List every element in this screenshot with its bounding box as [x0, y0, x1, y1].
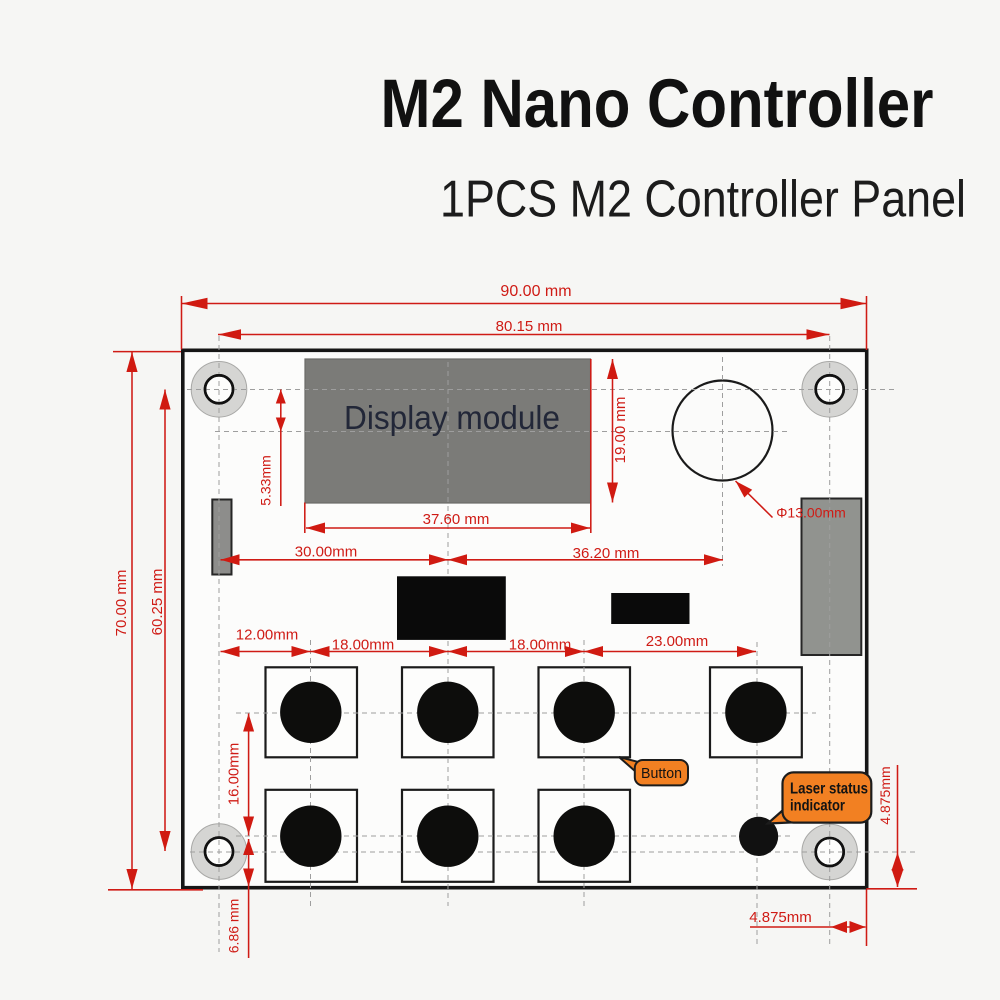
svg-text:36.20 mm: 36.20 mm [573, 545, 640, 562]
svg-text:12.00mm: 12.00mm [236, 627, 299, 644]
svg-text:Φ13.00mm: Φ13.00mm [776, 505, 846, 521]
svg-text:37.60 mm: 37.60 mm [423, 511, 490, 528]
svg-text:19.00 mm: 19.00 mm [612, 397, 629, 464]
svg-text:70.00 mm: 70.00 mm [113, 570, 130, 637]
svg-text:Button: Button [641, 766, 682, 782]
svg-text:Laser status: Laser status [790, 781, 868, 798]
svg-text:4.875mm: 4.875mm [877, 766, 893, 824]
svg-text:4.875mm: 4.875mm [749, 909, 812, 926]
svg-text:indicator: indicator [790, 798, 845, 815]
svg-text:90.00 mm: 90.00 mm [500, 283, 571, 300]
svg-text:M2 Nano Controller: M2 Nano Controller [381, 65, 934, 142]
svg-text:30.00mm: 30.00mm [295, 543, 358, 560]
svg-text:6.86 mm: 6.86 mm [226, 899, 242, 953]
svg-text:60.25 mm: 60.25 mm [149, 569, 166, 636]
svg-text:18.00mm: 18.00mm [332, 637, 395, 654]
svg-text:18.00mm: 18.00mm [509, 637, 572, 654]
svg-text:1PCS M2 Controller Panel: 1PCS M2 Controller Panel [440, 171, 966, 229]
svg-text:23.00mm: 23.00mm [646, 633, 709, 650]
svg-text:Display module: Display module [344, 399, 560, 436]
svg-text:16.00mm: 16.00mm [225, 743, 242, 806]
svg-text:80.15 mm: 80.15 mm [496, 318, 563, 335]
svg-text:5.33mm: 5.33mm [258, 455, 274, 506]
